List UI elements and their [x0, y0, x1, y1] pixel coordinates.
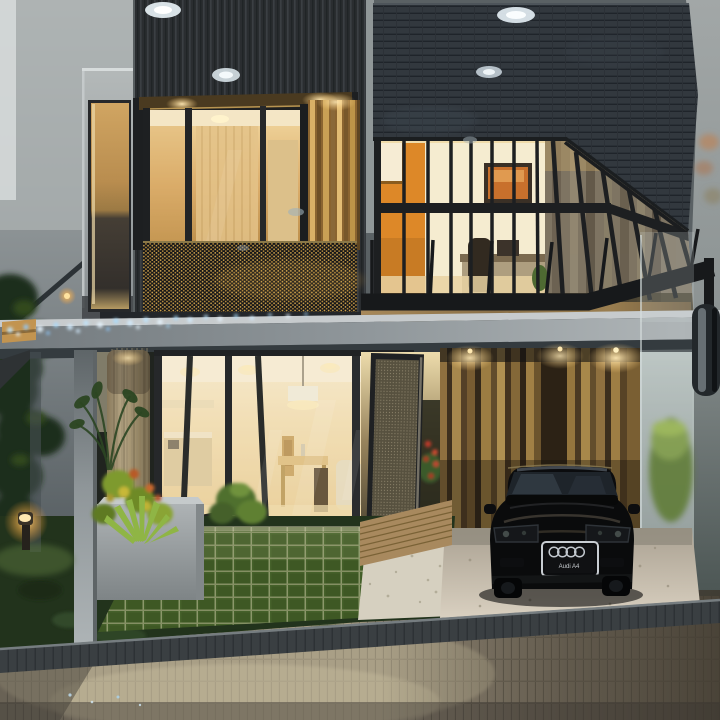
svg-text:Audi A4: Audi A4: [559, 564, 580, 570]
